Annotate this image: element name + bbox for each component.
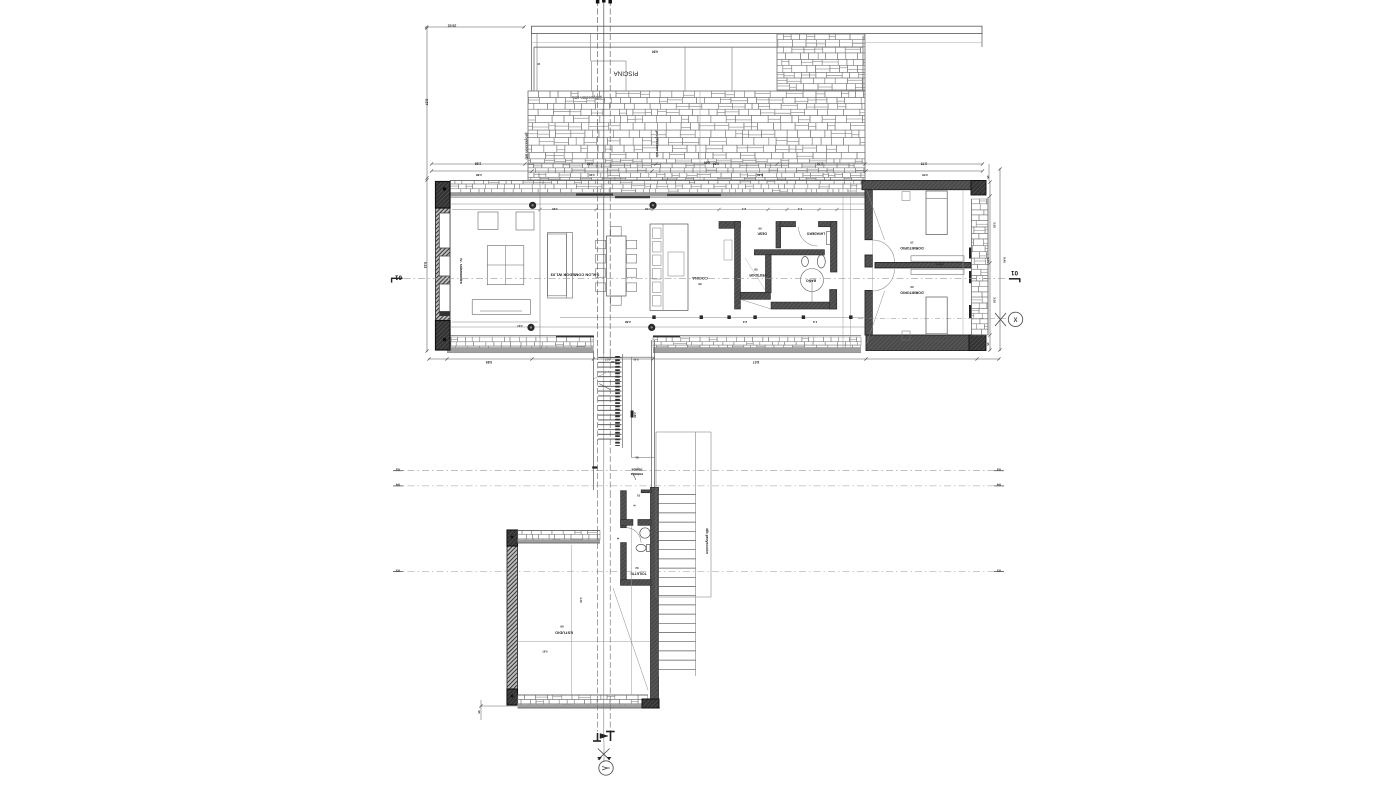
svg-text:2.88: 2.88 xyxy=(475,162,481,166)
svg-text:4.15: 4.15 xyxy=(579,597,583,603)
svg-text:TOILETTE: TOILETTE xyxy=(630,572,647,576)
svg-text:ESTUDIO: ESTUDIO xyxy=(555,631,573,636)
svg-text:BAÑO: BAÑO xyxy=(806,279,816,284)
svg-text:06: 06 xyxy=(560,625,564,629)
svg-text:4.60: 4.60 xyxy=(652,50,658,54)
svg-text:DESP.: DESP. xyxy=(757,232,767,236)
svg-text:X: X xyxy=(1013,318,1017,324)
svg-text:0.45: 0.45 xyxy=(633,358,639,362)
svg-text:proyección a/b: proyección a/b xyxy=(525,133,529,160)
svg-text:3.00: 3.00 xyxy=(993,222,997,228)
svg-text:0.17: 0.17 xyxy=(604,358,610,362)
svg-text:1.4: 1.4 xyxy=(798,207,803,211)
svg-text:SALON COMEDOR W1.03: SALON COMEDOR W1.03 xyxy=(550,273,599,278)
svg-text:4.95: 4.95 xyxy=(589,173,595,177)
svg-text:8: 8 xyxy=(537,63,541,65)
svg-text:DORMITORIO: DORMITORIO xyxy=(900,246,923,250)
svg-text:3.60: 3.60 xyxy=(713,162,719,166)
svg-text:PISCINA: PISCINA xyxy=(613,70,639,77)
svg-text:0.74: 0.74 xyxy=(986,257,990,263)
svg-text:08: 08 xyxy=(754,268,758,272)
svg-text:DORMITORIO: DORMITORIO xyxy=(900,291,923,295)
svg-text:3.55: 3.55 xyxy=(922,173,928,177)
svg-text:05: 05 xyxy=(698,282,702,286)
svg-text:8.07: 8.07 xyxy=(753,360,759,364)
svg-text:VESTIDOR: VESTIDOR xyxy=(749,273,767,277)
svg-text:3.00: 3.00 xyxy=(993,297,997,303)
svg-text:8.57: 8.57 xyxy=(425,99,429,106)
svg-text:4.97: 4.97 xyxy=(517,324,523,328)
svg-text:1.49 m²: 1.49 m² xyxy=(935,263,944,267)
svg-text:2.88: 2.88 xyxy=(476,173,482,177)
svg-text:01: 01 xyxy=(637,494,641,498)
svg-text:entrada: entrada xyxy=(631,472,643,476)
svg-text:55: 55 xyxy=(477,710,481,714)
svg-text:01: 01 xyxy=(395,274,402,281)
svg-text:4.60: 4.60 xyxy=(587,162,593,166)
svg-text:proyección a/b: proyección a/b xyxy=(655,131,659,158)
svg-text:1.9: 1.9 xyxy=(813,320,818,324)
svg-text:01: 01 xyxy=(635,456,639,460)
svg-text:4.97: 4.97 xyxy=(542,650,548,654)
svg-text:09: 09 xyxy=(910,285,914,289)
svg-text:tv- salamandra: tv- salamandra xyxy=(459,258,463,284)
svg-text:8.40: 8.40 xyxy=(1003,257,1007,263)
svg-text:4.95: 4.95 xyxy=(552,207,558,211)
svg-text:2.88: 2.88 xyxy=(625,320,631,324)
svg-text:02: 02 xyxy=(635,566,639,570)
svg-text:d/b proyección: d/b proyección xyxy=(705,528,709,554)
svg-text:29.02: 29.02 xyxy=(448,24,457,28)
svg-text:LAVADERO: LAVADERO xyxy=(806,232,825,236)
svg-text:2.1: 2.1 xyxy=(742,207,747,211)
svg-text:10: 10 xyxy=(910,241,914,245)
svg-text:6.30: 6.30 xyxy=(757,173,763,177)
svg-text:1.52: 1.52 xyxy=(645,207,651,211)
svg-text:2.70: 2.70 xyxy=(817,162,823,166)
svg-text:2.3: 2.3 xyxy=(743,320,748,324)
svg-text:5.33: 5.33 xyxy=(423,262,427,268)
svg-text:2.88: 2.88 xyxy=(633,412,637,418)
svg-text:06: 06 xyxy=(758,227,762,231)
svg-text:5.85: 5.85 xyxy=(486,360,492,364)
svg-text:3.75: 3.75 xyxy=(921,162,927,166)
svg-text:01: 01 xyxy=(1011,269,1018,276)
